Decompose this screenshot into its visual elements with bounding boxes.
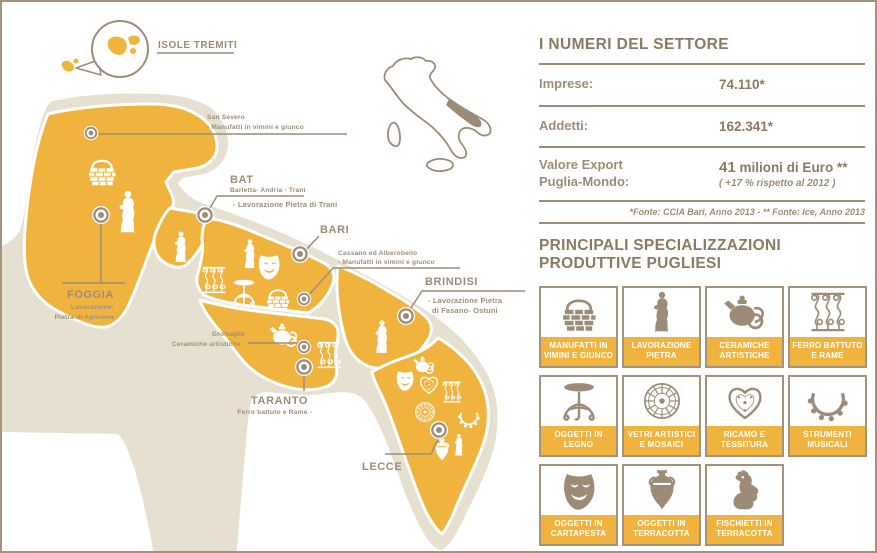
divider xyxy=(539,222,865,224)
cassano-craft: - Manufatti in vimini e giunco xyxy=(338,259,435,266)
bat-sub: Barletta- Andria - Trani xyxy=(230,187,306,194)
spec-cell-legno: OGGETTI INLEGNO xyxy=(539,375,618,457)
spec-cell-pietra: LAVORAZIONEPIETRA xyxy=(622,286,701,368)
table-icon xyxy=(541,377,616,426)
marker-cassano xyxy=(297,292,311,306)
basket-icon xyxy=(541,288,616,337)
tambourine-icon xyxy=(790,377,865,426)
sources-footnote: *Fonte: CCIA Bari, Anno 2013 - ** Fonte:… xyxy=(539,202,865,222)
bari-label: BARI xyxy=(320,224,349,236)
specializations-grid: MANUFATTI INVIMINI E GIUNCO LAVORAZIONEP… xyxy=(539,286,865,546)
teapot-icon xyxy=(707,288,782,337)
foggia-label: FOGGIA xyxy=(67,289,114,301)
spec-cell-cartapesta: OGGETTI INCARTAPESTA xyxy=(539,464,618,546)
heart-icon xyxy=(707,377,782,426)
brindisi-craft-2: di Fasano- Ostuni xyxy=(432,306,498,315)
marker-lecce xyxy=(430,421,448,439)
whistle-icon xyxy=(707,466,782,515)
amphora-icon xyxy=(624,466,699,515)
spec-cell-ferro: FERRO BATTUTOE RAME xyxy=(788,286,867,368)
brindisi-craft-1: - Lavorazione Pietra xyxy=(428,296,503,305)
spec-cell-ceramiche: CERAMICHEARTISTICHE xyxy=(705,286,784,368)
cassano-name: Cassano ed Alberobello xyxy=(338,250,417,257)
mask-icon xyxy=(541,466,616,515)
foggia-craft-1: Lavorazione- xyxy=(71,304,114,311)
statue-icon xyxy=(624,288,699,337)
spec-cell-ricamo: RICAMO ETESSITURA xyxy=(705,375,784,457)
export-value: 41 milioni di Euro ** ( +17 % rispetto a… xyxy=(719,158,865,191)
marker-taranto xyxy=(295,358,313,376)
stat-row-addetti: Addetti: 162.341* xyxy=(539,107,865,147)
marker-grottaglie xyxy=(297,340,311,354)
mosaic-icon xyxy=(416,403,435,422)
grottaglie-name: Grottaglie xyxy=(212,331,245,338)
san-severo-craft: - Manufatti in vimini e giunco xyxy=(207,124,304,131)
mosaic-icon xyxy=(624,377,699,426)
san-severo-name: San Severo xyxy=(207,114,245,121)
tremiti-islands-small xyxy=(62,61,75,72)
tremiti-island-dot xyxy=(74,59,79,64)
imprese-value: 74.110* xyxy=(719,76,865,94)
infographic-canvas: ISOLE TREMITI xyxy=(0,0,877,553)
tremiti-label: ISOLE TREMITI xyxy=(158,40,237,51)
marker-brindisi xyxy=(397,307,415,325)
bat-craft: - Lavorazione Pietra di Trani xyxy=(233,200,337,209)
marker-foggia xyxy=(92,206,110,224)
stat-row-export: Valore Export Puglia-Mondo: 41 milioni d… xyxy=(539,148,865,200)
specializations-title: PRINCIPALI SPECIALIZZAZIONI PRODUTTIVE P… xyxy=(539,237,865,273)
grottaglie-craft: Ceramiche artistiche - xyxy=(172,341,245,348)
spec-cell-fischietti: FISCHIETTI INTERRACOTTA xyxy=(705,464,784,546)
stat-row-imprese: Imprese: 74.110* xyxy=(539,65,865,105)
export-note: ( +17 % rispetto al 2012 ) xyxy=(719,177,865,190)
taranto-label: TARANTO xyxy=(251,395,308,407)
italy-inset-map xyxy=(384,57,490,171)
puglia-map: ISOLE TREMITI xyxy=(2,2,537,553)
bat-label: BAT xyxy=(230,174,254,186)
addetti-label: Addetti: xyxy=(539,118,719,135)
stats-title: I NUMERI DEL SETTORE xyxy=(539,36,865,54)
spec-cell-vetri: VETRI ARTISTICIE MOSAICI xyxy=(622,375,701,457)
taranto-craft: Ferro battuto e Rame - xyxy=(237,409,312,416)
export-label: Valore Export Puglia-Mondo: xyxy=(539,157,719,191)
puglia-highlight xyxy=(446,99,482,127)
lecce-label: LECCE xyxy=(362,461,402,473)
wrought-iron-icon xyxy=(790,288,865,337)
spec-cell-vimini: MANUFATTI INVIMINI E GIUNCO xyxy=(539,286,618,368)
marker-san-severo xyxy=(84,126,98,140)
spec-cell-terracotta: OGGETTI INTERRACOTTA xyxy=(622,464,701,546)
imprese-label: Imprese: xyxy=(539,76,719,93)
spec-cell-strumenti: STRUMENTIMUSICALI xyxy=(788,375,867,457)
marker-bari xyxy=(291,245,309,263)
tremiti-island-tiny xyxy=(130,48,136,54)
marker-bat xyxy=(196,206,214,224)
foggia-craft-2: Pietra di Apricena xyxy=(55,314,115,321)
sector-panel: I NUMERI DEL SETTORE Imprese: 74.110* Ad… xyxy=(539,2,865,546)
brindisi-label: BRINDISI xyxy=(425,276,478,288)
addetti-value: 162.341* xyxy=(719,118,865,136)
tremiti-inset: ISOLE TREMITI xyxy=(62,21,238,77)
